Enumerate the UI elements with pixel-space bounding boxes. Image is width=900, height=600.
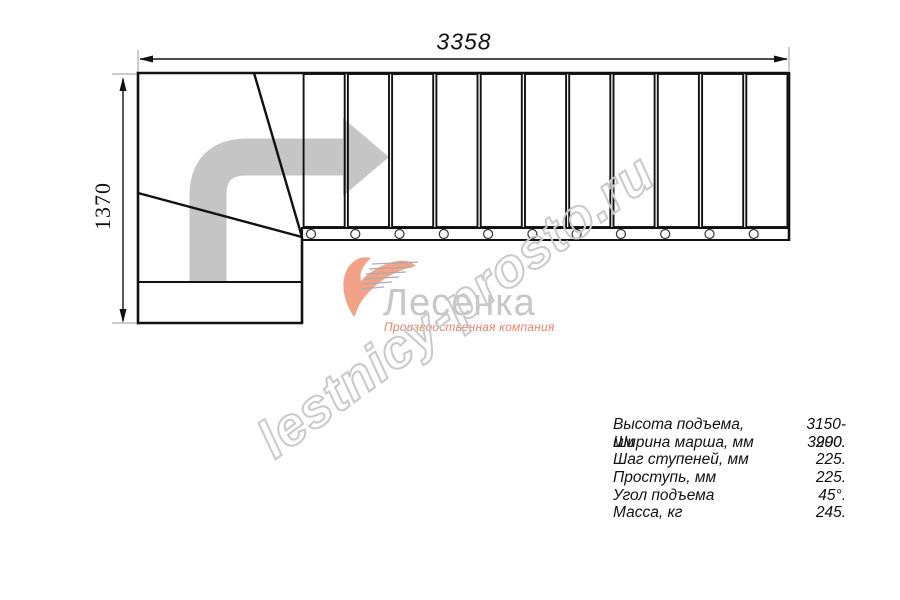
spec-value: 225.	[816, 469, 846, 487]
stringer-strip	[302, 228, 789, 240]
staircase-drawing-page: 3358 1370 Лесенка Производственная компа…	[0, 0, 900, 600]
screw-hole	[705, 230, 714, 239]
dimension-left	[120, 77, 127, 323]
spec-row-tread: Проступь, мм 225.	[613, 469, 846, 487]
spec-label: Шаг ступеней, мм	[613, 451, 749, 469]
spec-row-angle: Угол подъема 45°.	[613, 487, 846, 505]
spec-label: Высота подъема, мм	[613, 416, 768, 434]
logo-company-name: Лесенка	[383, 284, 536, 322]
company-logo: Лесенка Производственная компания	[340, 254, 600, 344]
tread	[746, 74, 787, 227]
tread	[658, 74, 699, 227]
screw-hole	[307, 230, 316, 239]
tread	[436, 74, 477, 227]
dimension-top	[139, 56, 788, 63]
tread	[569, 74, 610, 227]
logo-tagline: Производственная компания	[384, 320, 554, 334]
spec-value: 45°.	[818, 487, 846, 505]
tread	[702, 74, 743, 227]
spec-table: Высота подъема, мм 3150-3290. Ширина мар…	[613, 416, 846, 522]
tread	[481, 74, 522, 227]
spec-label: Ширина марша, мм	[613, 434, 754, 452]
spec-label: Угол подъема	[613, 487, 714, 505]
spec-label: Масса, кг	[613, 504, 682, 522]
screw-hole	[749, 230, 758, 239]
spec-row-mass: Масса, кг 245.	[613, 504, 846, 522]
spec-value: 245.	[816, 504, 846, 522]
dimension-height-label: 1370	[90, 182, 116, 230]
screw-hole	[484, 230, 493, 239]
spec-label: Проступь, мм	[613, 469, 716, 487]
spec-row-step: Шаг ступеней, мм 225.	[613, 451, 846, 469]
tread	[392, 74, 433, 227]
screw-hole	[439, 230, 448, 239]
screw-hole	[616, 230, 625, 239]
tread	[614, 74, 655, 227]
tread	[525, 74, 566, 227]
spec-row-height: Высота подъема, мм 3150-3290.	[613, 416, 846, 434]
screw-hole	[395, 230, 404, 239]
direction-arrow-head	[343, 118, 389, 196]
spec-value: 900.	[816, 434, 846, 452]
screw-hole	[661, 230, 670, 239]
screw-hole	[351, 230, 360, 239]
screw-hole	[528, 230, 537, 239]
spec-value: 3150-3290.	[768, 416, 846, 434]
screw-hole	[572, 230, 581, 239]
dimension-width-label: 3358	[436, 29, 491, 56]
spec-value: 225.	[816, 451, 846, 469]
